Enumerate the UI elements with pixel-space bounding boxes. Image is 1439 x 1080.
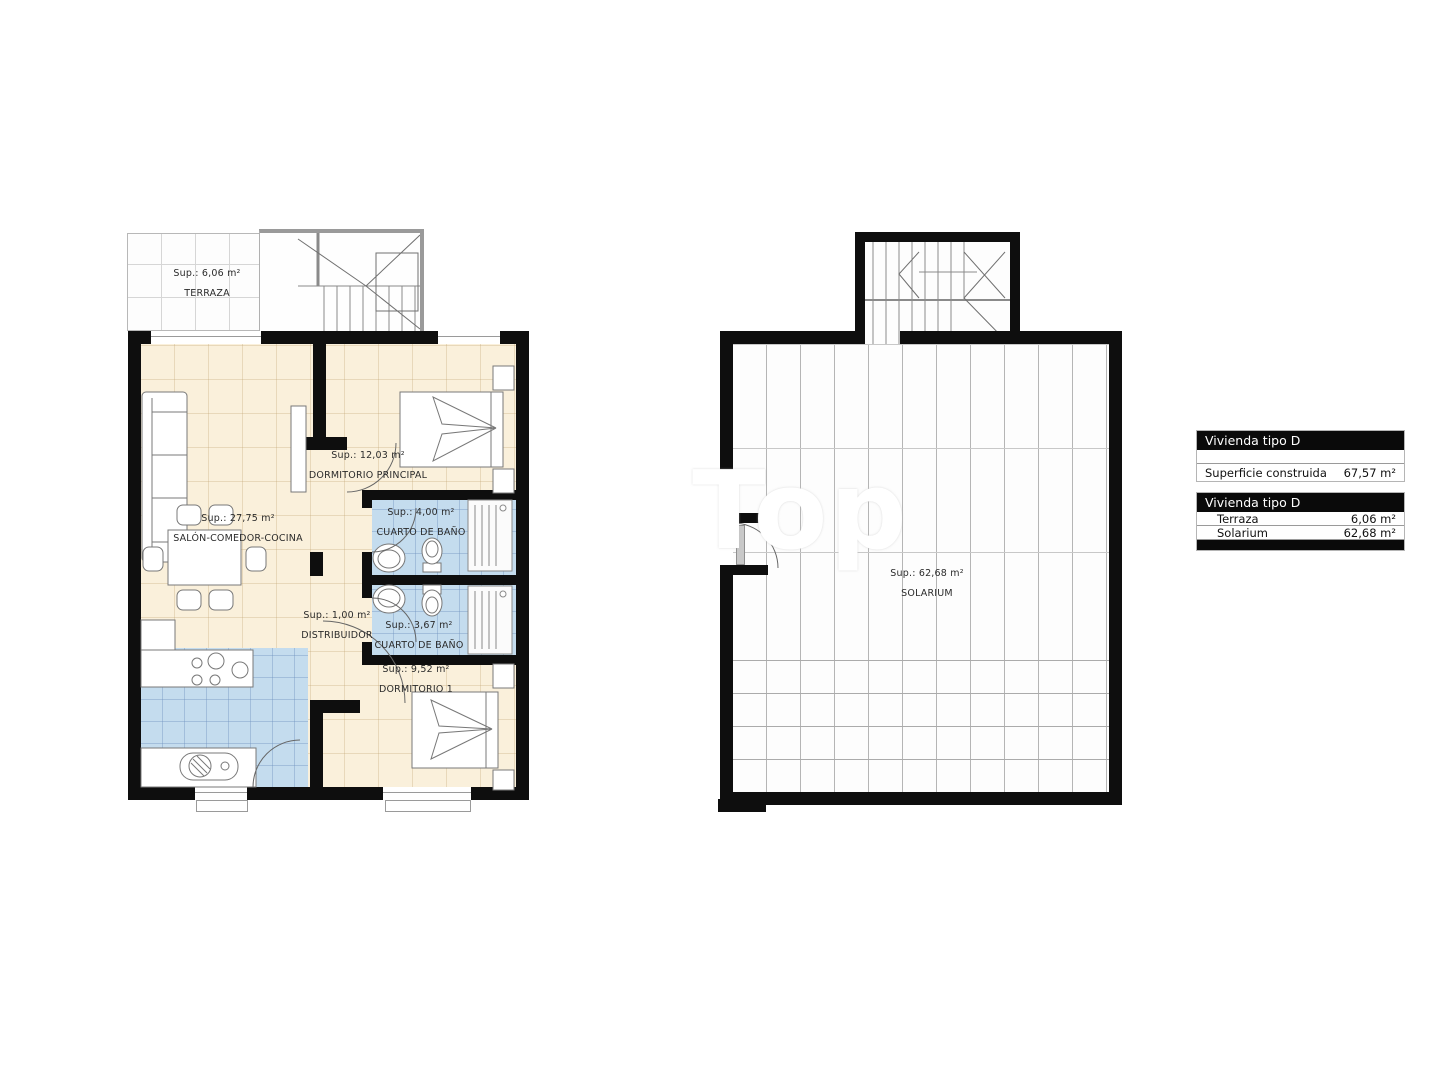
wall-bath-block-top [362,490,516,500]
wall-distribuidor-jamb [310,552,323,576]
room-label-dormitorio-principal: Sup.: 12,03 m² DORMITORIO PRINCIPAL [288,449,448,482]
room-label-solarium: Sup.: 62,68 m² SOLARIUM [847,567,1007,600]
legend-spacer [1197,450,1404,463]
window-bedroom-principal [438,331,500,344]
staircase-roof-drawing [865,242,1010,344]
room-label-dormitorio-1: Sup.: 9,52 m² DORMITORIO 1 [336,663,496,696]
solarium-grid-horizontal-lower [733,656,1109,792]
legend-table-exterior-areas: Vivienda tipo D Terraza 6,06 m² Solarium… [1196,492,1405,551]
window-kitchen [195,787,247,800]
legend-footer-bar [1197,540,1404,550]
legend-row-label: Terraza [1217,512,1259,526]
wall-under-roof-stair [900,331,1022,344]
legend-row-solarium: Solarium 62,68 m² [1197,526,1404,540]
wall-dorm1-left [310,700,323,787]
legend-row-value: 67,57 m² [1344,466,1396,480]
window-salon-terrace [151,331,261,344]
room-label-bano-1: Sup.: 4,00 m² CUARTO DE BAÑO [371,506,471,539]
legend-row-label: Solarium [1217,526,1268,540]
room-label-terraza: Sup.: 6,06 m² TERRAZA [147,267,267,300]
wall-salon-bedroom [313,344,326,443]
wall-bath-divider [362,575,516,585]
staircase-ground-floor [259,229,424,331]
legend-table-built-area: Vivienda tipo D Superficie construida 67… [1196,430,1405,482]
solarium-corner-jog [718,799,766,812]
window-dorm1 [383,787,471,800]
floorplan-sheet: Sup.: 6,06 m² TERRAZA Sup.: 27,75 m² SAL… [0,0,1439,1080]
staircase-roof-level [855,232,1020,344]
room-label-bano-2: Sup.: 3,67 m² CUARTO DE BAÑO [369,619,469,652]
room-label-salon: Sup.: 27,75 m² SALÓN-COMEDOR-COCINA [153,512,323,545]
legend-row-superficie: Superficie construida 67,57 m² [1197,463,1404,481]
room-label-distribuidor: Sup.: 1,00 m² DISTRIBUIDOR [296,609,378,642]
window-sill-kitchen [196,800,248,812]
legend-title: Vivienda tipo D [1197,431,1404,450]
legend-row-value: 62,68 m² [1344,526,1396,540]
legend-row-terraza: Terraza 6,06 m² [1197,512,1404,526]
legend-row-value: 6,06 m² [1351,512,1396,526]
window-sill-dorm1 [385,800,471,812]
site-watermark: Top [692,458,909,566]
kitchen-floor-tiles [141,648,308,787]
legend-row-label: Superficie construida [1205,466,1327,480]
legend-title: Vivienda tipo D [1197,493,1404,512]
staircase-drawing [260,233,420,331]
